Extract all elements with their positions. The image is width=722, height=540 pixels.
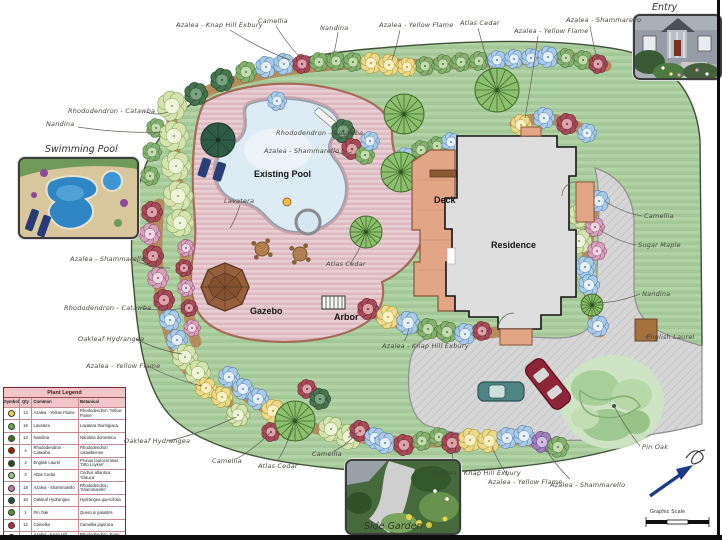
plant-label: Camellia — [212, 457, 242, 465]
plant-label: Azalea - Knap Hill Exbury — [434, 469, 521, 477]
plant-label: Rhododendron - Catawba — [68, 107, 155, 115]
plant-label: Azalea - Yellow Flame — [514, 27, 588, 35]
plant-label: English Laurel — [646, 333, 695, 341]
plant-label: Azalea - Shammarello — [566, 16, 641, 24]
plant-label: Camellia — [644, 212, 674, 220]
graphic-scale-label: Graphic Scale — [650, 509, 685, 515]
plant-label: Camellia — [312, 450, 342, 458]
area-label: Existing Pool — [254, 169, 311, 179]
plant-label: Pin Oak — [642, 443, 668, 451]
photo-title-label: Side Garden — [364, 521, 423, 532]
photo-title-label: Swimming Pool — [45, 144, 118, 155]
plant-label: Nandina — [320, 24, 348, 32]
area-label: Deck — [434, 195, 456, 205]
plant-label: Azalea - Shammarello — [264, 147, 339, 155]
plant-label: Atlas Cedar — [460, 19, 500, 27]
plant-label: Azalea - Yellow Flame — [379, 21, 453, 29]
sheet-right-border — [717, 0, 720, 540]
plant-label: Rhododendron - Catawba — [64, 304, 151, 312]
plant-label: Nandina — [46, 120, 74, 128]
plant-label: Sugar Maple — [638, 241, 681, 249]
plant-label: Azalea - Yellow Flame — [86, 362, 160, 370]
plant-label: Atlas Cedar — [258, 462, 298, 470]
sheet-bottom-border — [0, 535, 722, 540]
area-label: Arbor — [334, 312, 359, 322]
plant-label: Nandina — [642, 290, 670, 298]
plant-label: Lavatera — [224, 197, 254, 205]
plant-label: Oakleaf Hydrangea — [78, 335, 144, 343]
plant-label: Oakleaf Hydrangea — [124, 437, 190, 445]
plant-label: Rhododendron - Catawba — [276, 129, 363, 137]
plant-label: Azalea - Knap Hill Exbury — [176, 21, 263, 29]
landscape-plan-sheet: Plant Legend Symbol Qty Common Botanical… — [0, 0, 722, 540]
plant-label: Camellia — [258, 17, 288, 25]
plant-label: Azalea - Knap Hill Exbury — [382, 342, 469, 350]
plant-label: Azalea - Shammarello — [70, 255, 145, 263]
plant-label: Azalea - Shammarello — [550, 481, 625, 489]
photo-title-label: Entry — [652, 2, 677, 13]
area-label: Residence — [491, 240, 536, 250]
area-label: Gazebo — [250, 306, 283, 316]
plant-label: Atlas Cedar — [326, 260, 366, 268]
labels-layer: NandinaAzalea - Knap Hill ExburyCamellia… — [0, 0, 722, 540]
